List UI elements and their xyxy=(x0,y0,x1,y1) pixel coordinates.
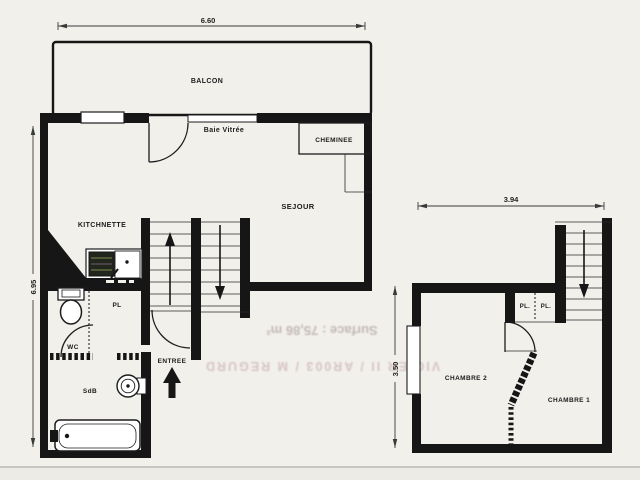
baie-vitree-label: Baie Vitrée xyxy=(204,127,244,134)
entrance-direction-arrow xyxy=(163,367,181,398)
closet-pl-right-label: PL. xyxy=(541,304,552,310)
wc-label: WC xyxy=(67,344,79,351)
kitchenette-label: KITCHNETTE xyxy=(78,222,126,229)
chambre1-label: CHAMBRE 1 xyxy=(548,397,590,404)
bathtub-faucet xyxy=(50,430,58,442)
dim-label-3-94: 3.94 xyxy=(504,195,519,204)
baie-vitree-window xyxy=(188,115,257,122)
wc-door-arc xyxy=(61,325,93,357)
sink-drain xyxy=(125,260,128,263)
closet-pl-left-label: PL. xyxy=(520,304,531,310)
kitchen-corner-wall xyxy=(48,230,86,278)
entrance: ENTREE xyxy=(152,310,190,398)
wc-room: WC xyxy=(50,288,141,357)
balcony-label: BALCON xyxy=(191,78,223,85)
sejour-label: SEJOUR xyxy=(281,202,314,211)
stairs-down-arrow xyxy=(215,225,225,300)
bathroom: SdB xyxy=(50,375,146,451)
dim-height-right-plan: 3.50 xyxy=(391,286,400,448)
toilet-bowl xyxy=(61,300,82,324)
closet-pl: PL xyxy=(89,291,122,356)
stairs-down-arrow-upper xyxy=(579,230,589,298)
kitchen-window xyxy=(81,112,124,123)
scanned-floor-plan-page: Surface : 75,86 m² VIGIER II / AR003 / M… xyxy=(0,0,640,480)
dim-height-left-plan: 6.95 xyxy=(29,126,38,447)
floor-plan-drawing: Surface : 75,86 m² VIGIER II / AR003 / M… xyxy=(0,0,640,480)
scan-paper-edge xyxy=(0,467,640,480)
dim-width-right-plan: 3.94 xyxy=(418,195,604,210)
fireplace-label: CHEMINEE xyxy=(315,137,353,144)
closet-pl-label: PL xyxy=(112,302,121,309)
kitchenette: KITCHNETTE xyxy=(40,222,142,291)
bleed-through-text: Surface : 75,86 m² VIGIER II / AR003 / M… xyxy=(204,323,440,373)
chambre2-label: CHAMBRE 2 xyxy=(445,375,487,382)
right-floor-plan: 3.94 3.50 xyxy=(391,195,612,453)
entrance-label: ENTREE xyxy=(158,358,187,365)
left-floor-plan: 6.60 6.95 BALCON xyxy=(29,16,372,458)
dim-width-left-plan: 6.60 xyxy=(58,16,365,30)
dim-label-3-50: 3.50 xyxy=(391,362,400,377)
chambre2-window xyxy=(407,326,420,394)
entrance-door-arc xyxy=(152,310,190,348)
dim-label-6-95: 6.95 xyxy=(29,280,38,295)
balcony-door-arc xyxy=(149,123,188,162)
kitchen-lower-wall xyxy=(40,278,141,291)
bleed-line-surface: Surface : 75,86 m² xyxy=(266,323,378,338)
fireplace: CHEMINEE xyxy=(299,123,371,192)
kitchen-sink xyxy=(115,251,140,278)
bathroom-label: SdB xyxy=(83,388,97,395)
bedroom-partition xyxy=(505,351,537,451)
staircase-left-plan xyxy=(141,218,250,360)
bleed-line-residence: VIGIER II / AR003 / M REGURD xyxy=(204,359,440,373)
bedroom-door xyxy=(505,322,535,352)
upper-closets: PL. PL. xyxy=(515,293,555,322)
dim-label-6-60: 6.60 xyxy=(201,16,216,25)
